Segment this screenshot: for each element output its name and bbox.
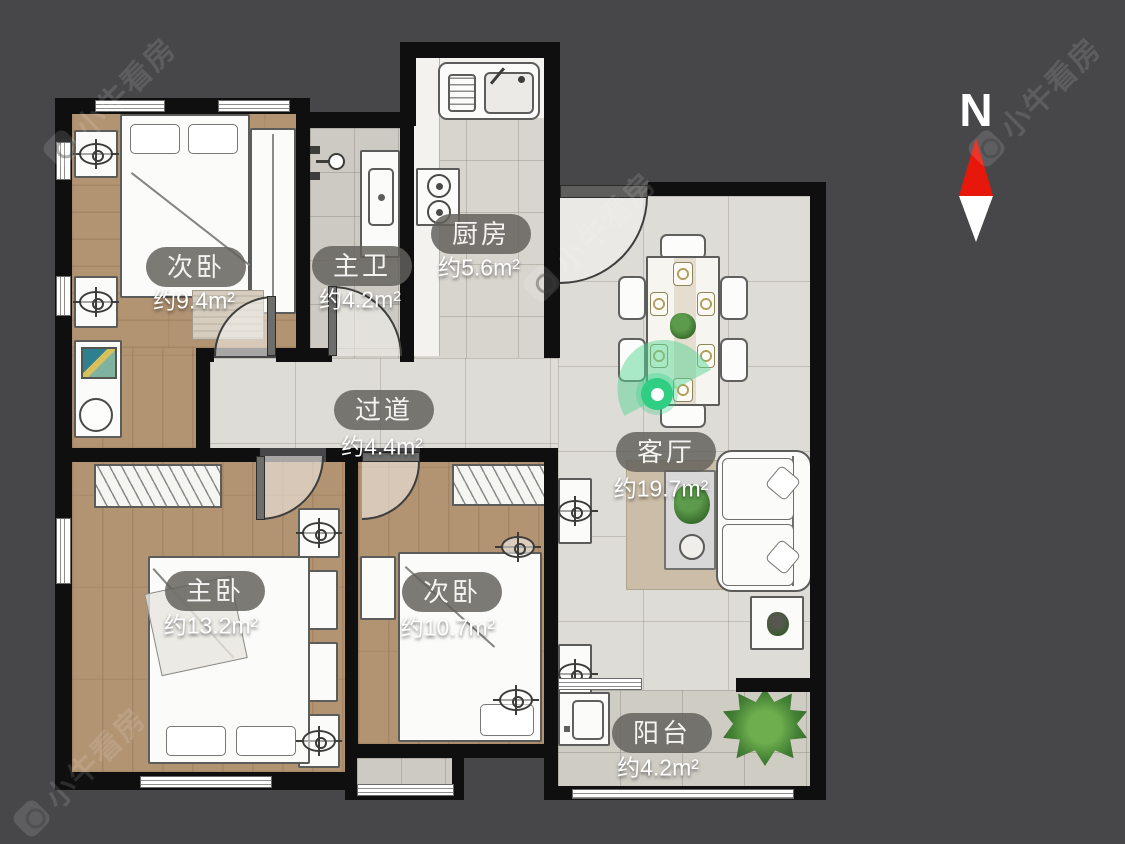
wall [345,758,357,792]
window [558,678,642,690]
window [56,276,71,316]
wall [400,114,414,362]
window [140,776,272,788]
wall [420,448,558,462]
drainboard [448,74,476,112]
washer-knob [564,726,570,732]
wall [345,744,558,758]
room-label-bedroom-bottom: 次卧 [402,572,502,612]
bathroom-vanity [360,150,400,258]
shower-icon [310,144,344,202]
wardrobe-divider [272,134,274,308]
ceiling-light-ellipse [302,730,336,752]
wall [196,348,210,448]
panorama-point-marker[interactable] [641,378,673,410]
pillow [166,726,226,756]
side-table [750,596,804,650]
side-table-flowers [767,612,789,636]
panorama-point-center [651,388,664,401]
ceiling-light-icon [495,532,541,562]
wall [55,448,260,462]
dining-chair [720,276,748,320]
room-area-master-bedroom: 约13.2m² [164,615,259,638]
ceiling-light-ellipse [501,536,535,558]
wall [736,678,810,692]
watermark-logo-icon [40,127,82,169]
washing-machine [558,692,610,746]
room-label-bathroom: 主卫 [312,246,412,286]
ceiling-light-icon [493,685,539,715]
washer-door [572,700,604,740]
wall [296,112,414,128]
dining-chair [720,338,748,382]
place-setting [697,292,715,316]
room-area-living-room: 约19.7m² [614,478,709,501]
room-area-bathroom: 约4.2m² [319,289,401,312]
desk-chair [79,398,113,432]
watermark-logo-icon [10,797,52,839]
door-leaf [256,456,265,520]
room-label-hallway: 过道 [334,390,434,430]
south-arrow-icon [959,196,993,242]
table-centerpiece-plant [670,313,696,339]
wall [544,42,560,358]
wall [400,42,558,58]
room-area-hallway: 约4.4m² [341,436,423,459]
place-setting [650,292,668,316]
pillow [236,726,296,756]
monitor-art [81,347,117,379]
wall [648,182,810,196]
ceiling-light-ellipse [79,291,113,313]
room-area-bedroom-top: 约9.4m² [153,290,235,313]
room-label-balcony: 阳台 [612,713,712,753]
shower-head [328,153,345,170]
place-setting [673,262,693,286]
wall [345,462,358,758]
window [357,784,454,796]
wall [296,114,310,362]
burner [427,174,451,198]
wall [544,448,558,786]
window [572,789,794,799]
watermark-text: 小牛看房 [988,25,1110,147]
wardrobe [94,464,222,508]
wall [404,348,414,362]
tray [679,534,705,560]
kitchen-sink-unit [438,62,540,120]
door-leaf [267,296,276,356]
pillow [130,124,180,154]
window [56,518,71,584]
ceiling-light-ellipse [499,689,533,711]
faucet-knob [518,76,525,83]
ceiling-light-icon [552,496,598,526]
dining-chair [618,276,646,320]
window [218,100,290,112]
shower-valve [310,146,320,154]
wardrobe [250,128,296,314]
wall [55,98,72,790]
shower-valve [310,172,320,180]
wall [276,348,332,362]
pillow [188,124,238,154]
wall [810,182,826,786]
room-label-kitchen: 厨房 [431,214,531,254]
ceiling-light-icon [296,518,342,548]
wardrobe [452,464,554,506]
room-area-balcony: 约4.2m² [617,757,699,780]
floorplan-canvas: 次卧 约9.4m² 主卫 约4.2m² 厨房 约5.6m² 过道 约4.4m² … [0,0,1125,844]
ceiling-light-ellipse [302,522,336,544]
ceiling-light-icon [296,726,342,756]
sofa [716,450,812,592]
ceiling-light-ellipse [558,500,592,522]
room-label-master-bedroom: 主卧 [165,571,265,611]
sink-drain [378,194,385,201]
room-area-kitchen: 约5.6m² [438,257,520,280]
room-area-bedroom-bottom: 约10.7m² [401,617,496,640]
nightstand [360,556,396,620]
ceiling-light-icon [73,287,119,317]
room-label-bedroom-top: 次卧 [146,247,246,287]
sink-basin [484,72,534,114]
room-label-living-room: 客厅 [616,432,716,472]
